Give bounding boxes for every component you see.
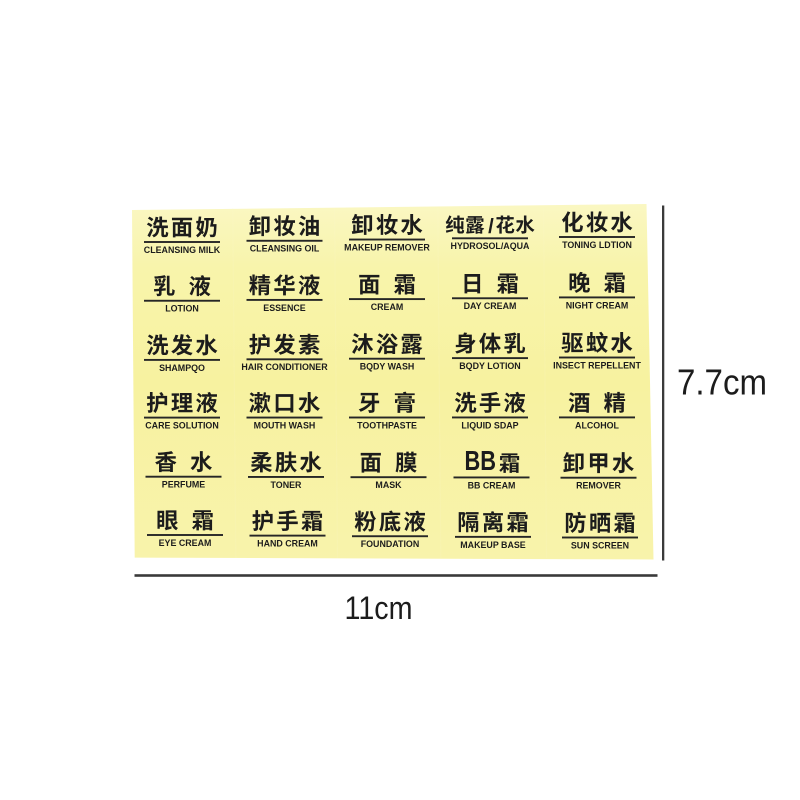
svg-text:BB CREAM: BB CREAM [468, 480, 516, 490]
svg-text:11cm: 11cm [345, 590, 413, 626]
svg-text:7.7cm: 7.7cm [677, 362, 767, 403]
svg-text:MASK: MASK [375, 480, 402, 490]
svg-text:TONING LDTION: TONING LDTION [562, 240, 632, 250]
svg-text:BB: BB [465, 445, 497, 476]
svg-text:DAY CREAM: DAY CREAM [464, 301, 517, 311]
svg-text:HAND CREAM: HAND CREAM [257, 539, 318, 549]
svg-text:/: / [488, 216, 494, 238]
svg-text:TONER: TONER [271, 480, 302, 490]
svg-text:SUN SCREEN: SUN SCREEN [571, 540, 629, 550]
svg-text:TOOTHPASTE: TOOTHPASTE [357, 420, 417, 430]
svg-text:PERFUME: PERFUME [162, 480, 205, 490]
svg-text:HYDROSOL/AQUA: HYDROSOL/AQUA [451, 241, 530, 251]
svg-text:HAIR CONDITIONER: HAIR CONDITIONER [241, 362, 328, 372]
svg-text:EYE CREAM: EYE CREAM [159, 538, 212, 548]
svg-text:SHAMPQO: SHAMPQO [159, 363, 205, 373]
svg-text:REMOVER: REMOVER [576, 481, 621, 491]
svg-text:ESSENCE: ESSENCE [263, 303, 305, 313]
svg-text:LIQUID SDAP: LIQUID SDAP [461, 420, 518, 430]
svg-text:LOTION: LOTION [165, 304, 199, 314]
svg-text:MAKEUP REMOVER: MAKEUP REMOVER [344, 242, 430, 252]
svg-text:FOUNDATION: FOUNDATION [361, 539, 420, 549]
svg-text:CARE SOLUTION: CARE SOLUTION [145, 421, 218, 431]
svg-text:CREAM: CREAM [371, 302, 404, 312]
svg-text:MOUTH WASH: MOUTH WASH [254, 421, 316, 431]
svg-text:ALCOHOL: ALCOHOL [575, 420, 619, 430]
svg-text:NIGHT CREAM: NIGHT CREAM [566, 300, 629, 310]
svg-text:BQDY LOTION: BQDY LOTION [459, 361, 520, 371]
svg-text:CLEANSING MILK: CLEANSING MILK [144, 245, 221, 255]
svg-text:INSECT REPELLENT: INSECT REPELLENT [553, 360, 641, 370]
svg-text:CLEANSING OIL: CLEANSING OIL [250, 244, 320, 254]
svg-text:MAKEUP BASE: MAKEUP BASE [460, 540, 526, 550]
svg-text:BQDY WASH: BQDY WASH [360, 362, 415, 372]
